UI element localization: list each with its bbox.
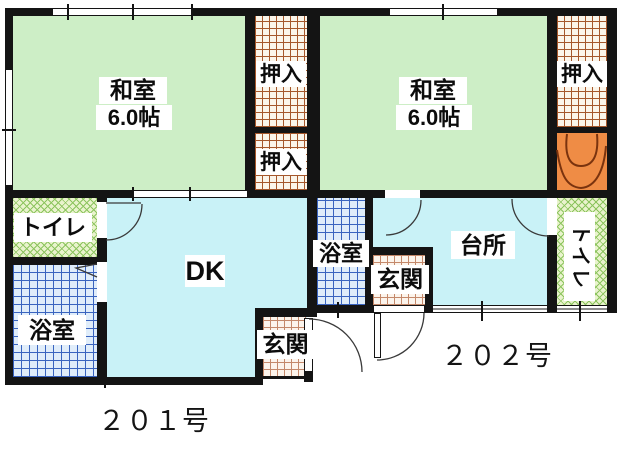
room-label-text: 玄関	[377, 268, 423, 291]
room-label-text: 和室	[410, 79, 456, 102]
floor-plan: 和室 6.0帖 和室 6.0帖 押入 押入 押入 トイレ 浴室 DK 玄関 浴室…	[0, 0, 640, 454]
wall-tick	[2, 129, 16, 131]
wall	[607, 8, 617, 313]
wall	[365, 247, 433, 255]
unit-label-202: ２０２号	[441, 334, 553, 373]
room-label-text: 押入	[561, 64, 603, 85]
wall-tick	[67, 4, 69, 20]
room-202-stairs	[557, 133, 607, 190]
room-label-202-genkan: 玄関	[371, 265, 429, 294]
room-label-202-toilet: トイレ	[564, 212, 595, 301]
wall-tick	[191, 4, 193, 20]
room-label-201-dk: DK	[185, 255, 225, 287]
door-opening-202-kitchen	[385, 190, 420, 198]
room-label-text: 押入	[260, 64, 302, 85]
wall-tick	[189, 187, 191, 201]
room-size-202-washitsu: 6.0帖	[396, 105, 472, 130]
wall-tick	[579, 301, 581, 321]
room-label-202-bath: 浴室	[313, 240, 369, 267]
wall	[307, 8, 320, 190]
room-label-201-genkan: 玄関	[257, 330, 314, 359]
wall-tick	[104, 374, 106, 388]
wall	[255, 127, 307, 133]
door-arc-202-entry	[377, 313, 424, 360]
entry-door-202-open	[374, 313, 381, 358]
door-opening-201-bath	[97, 262, 107, 302]
room-label-text: トイレ	[20, 217, 86, 239]
wall	[307, 305, 373, 313]
door-opening-201-toilet	[97, 202, 107, 238]
room-label-202-kitchen: 台所	[451, 231, 515, 259]
entry-door-202	[373, 305, 425, 313]
room-label-text: DK	[186, 258, 225, 285]
room-size-201-washitsu: 6.0帖	[96, 105, 172, 130]
wall-tick	[481, 301, 483, 321]
wall-tick	[132, 4, 134, 20]
wall-tick	[132, 187, 134, 201]
room-label-text: 浴室	[319, 243, 363, 265]
wall	[557, 127, 607, 133]
door-opening-202-toilet	[547, 198, 557, 235]
room-label-text: 玄関	[263, 333, 309, 356]
room-label-201-oshiire-upper: 押入	[256, 61, 306, 87]
room-label-201-bath: 浴室	[18, 315, 86, 345]
room-label-202-washitsu: 和室	[399, 77, 467, 104]
room-size-text: 6.0帖	[108, 107, 161, 129]
room-label-text: 和室	[110, 79, 156, 102]
room-size-text: 6.0帖	[408, 107, 461, 129]
door-arc-201-entry	[309, 319, 362, 372]
window-202-south-toilet	[557, 305, 607, 313]
window-201-top	[53, 8, 193, 16]
wall	[5, 377, 263, 385]
room-label-text: 浴室	[29, 319, 75, 342]
room-label-201-toilet: トイレ	[14, 213, 92, 242]
room-label-text: 押入	[260, 152, 302, 173]
wall	[263, 376, 307, 379]
room-label-202-oshiire: 押入	[557, 61, 607, 87]
wall	[5, 257, 107, 265]
wall	[304, 372, 313, 382]
window-201-left	[5, 70, 13, 185]
room-label-201-oshiire-lower: 押入	[256, 149, 306, 175]
unit-label-201: ２０１号	[98, 399, 210, 438]
wall-tick	[442, 4, 444, 20]
room-label-201-washitsu: 和室	[99, 77, 167, 104]
room-label-text: 台所	[460, 234, 506, 257]
wall-tick	[337, 302, 339, 318]
wall	[547, 16, 557, 190]
room-label-text-vertical: トイレ	[570, 224, 590, 290]
wall	[245, 16, 255, 190]
window-202-south-kitchen	[433, 305, 547, 313]
